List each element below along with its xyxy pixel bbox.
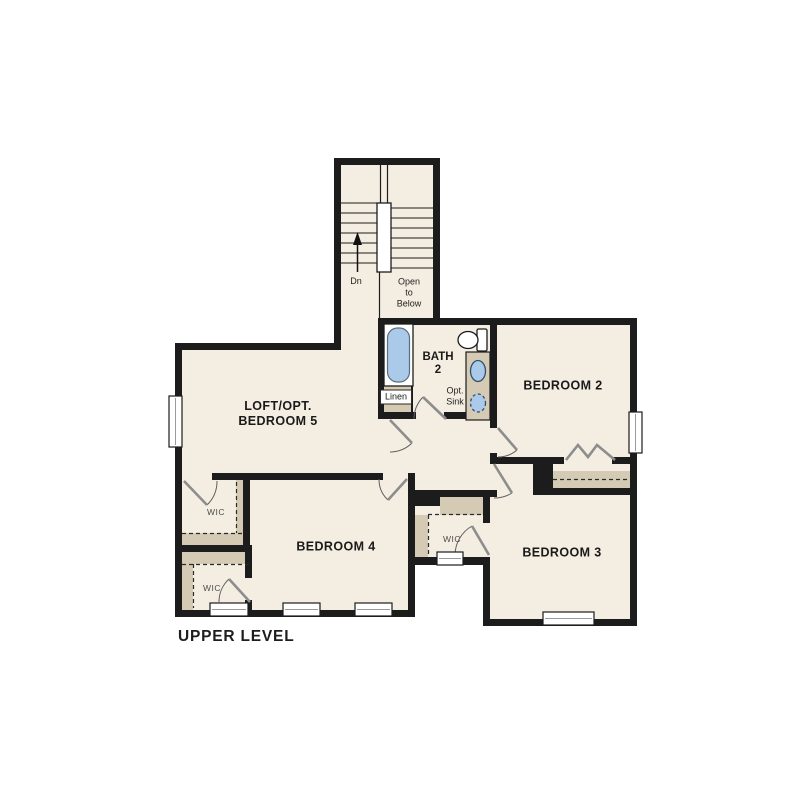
stair-handrail (377, 203, 391, 272)
optional-sink (471, 394, 486, 412)
opt-sink-label: Opt. Sink (446, 386, 464, 407)
bedroom4-label: BEDROOM 4 (296, 540, 375, 555)
bath-label: BATH 2 (422, 351, 453, 377)
bedroom2-label: BEDROOM 2 (523, 379, 602, 394)
bathtub (388, 328, 410, 382)
stairs-down-label: Dn (350, 276, 362, 287)
bedroom3-label: BEDROOM 3 (522, 546, 601, 561)
wic-bedroom3-label: WIC (443, 534, 461, 544)
wic-loft-label: WIC (207, 507, 225, 517)
toilet-bowl (458, 332, 478, 349)
floor-plan-drawing (0, 0, 810, 810)
sink (471, 361, 486, 382)
linen-label: Linen (380, 390, 412, 405)
open-to-below-label: Open to Below (397, 277, 422, 310)
level-title: UPPER LEVEL (178, 628, 294, 646)
wic-bedroom4-label: WIC (203, 583, 221, 593)
floor-plan-canvas: LOFT/OPT. BEDROOM 5 BEDROOM 2 BEDROOM 3 … (0, 0, 810, 810)
loft-label: LOFT/OPT. BEDROOM 5 (238, 399, 317, 429)
